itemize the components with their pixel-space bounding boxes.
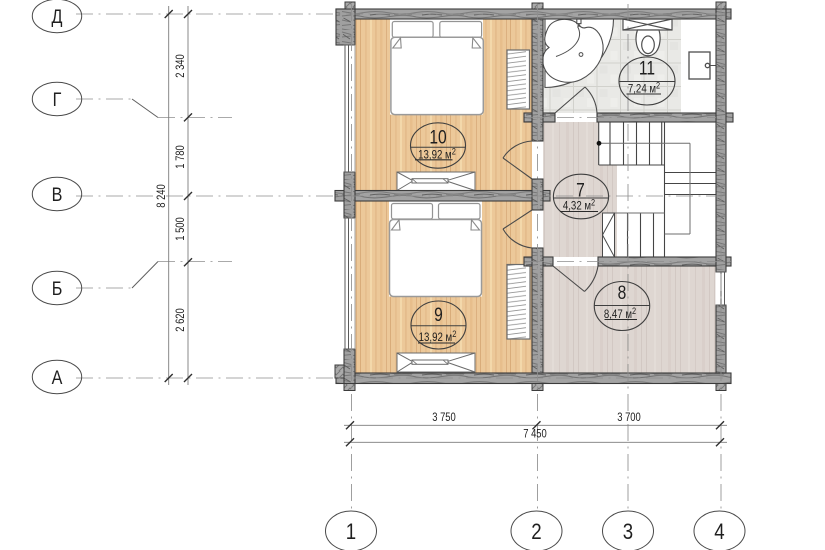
svg-text:В: В: [52, 184, 63, 206]
svg-text:А: А: [52, 367, 63, 389]
svg-text:13,92 м2: 13,92 м2: [419, 329, 457, 344]
svg-text:2: 2: [531, 521, 541, 545]
svg-text:1 500: 1 500: [174, 217, 187, 241]
svg-text:8: 8: [618, 282, 627, 304]
svg-text:Д: Д: [52, 6, 63, 28]
svg-text:10: 10: [429, 126, 446, 148]
svg-text:1: 1: [346, 521, 356, 545]
svg-text:11: 11: [639, 57, 655, 79]
svg-text:3: 3: [623, 521, 633, 545]
svg-text:Г: Г: [53, 89, 62, 111]
svg-text:2 340: 2 340: [174, 54, 187, 78]
svg-text:4: 4: [714, 521, 724, 545]
svg-text:1 780: 1 780: [174, 145, 187, 169]
svg-text:4,32 м2: 4,32 м2: [563, 198, 596, 213]
svg-text:Б: Б: [52, 278, 63, 300]
svg-text:3 700: 3 700: [617, 411, 641, 424]
svg-text:7 450: 7 450: [523, 428, 547, 441]
svg-text:7: 7: [576, 179, 585, 201]
svg-text:9: 9: [434, 304, 443, 326]
svg-text:8 240: 8 240: [155, 184, 168, 208]
svg-text:3 750: 3 750: [432, 411, 456, 424]
svg-text:2 620: 2 620: [174, 308, 187, 332]
